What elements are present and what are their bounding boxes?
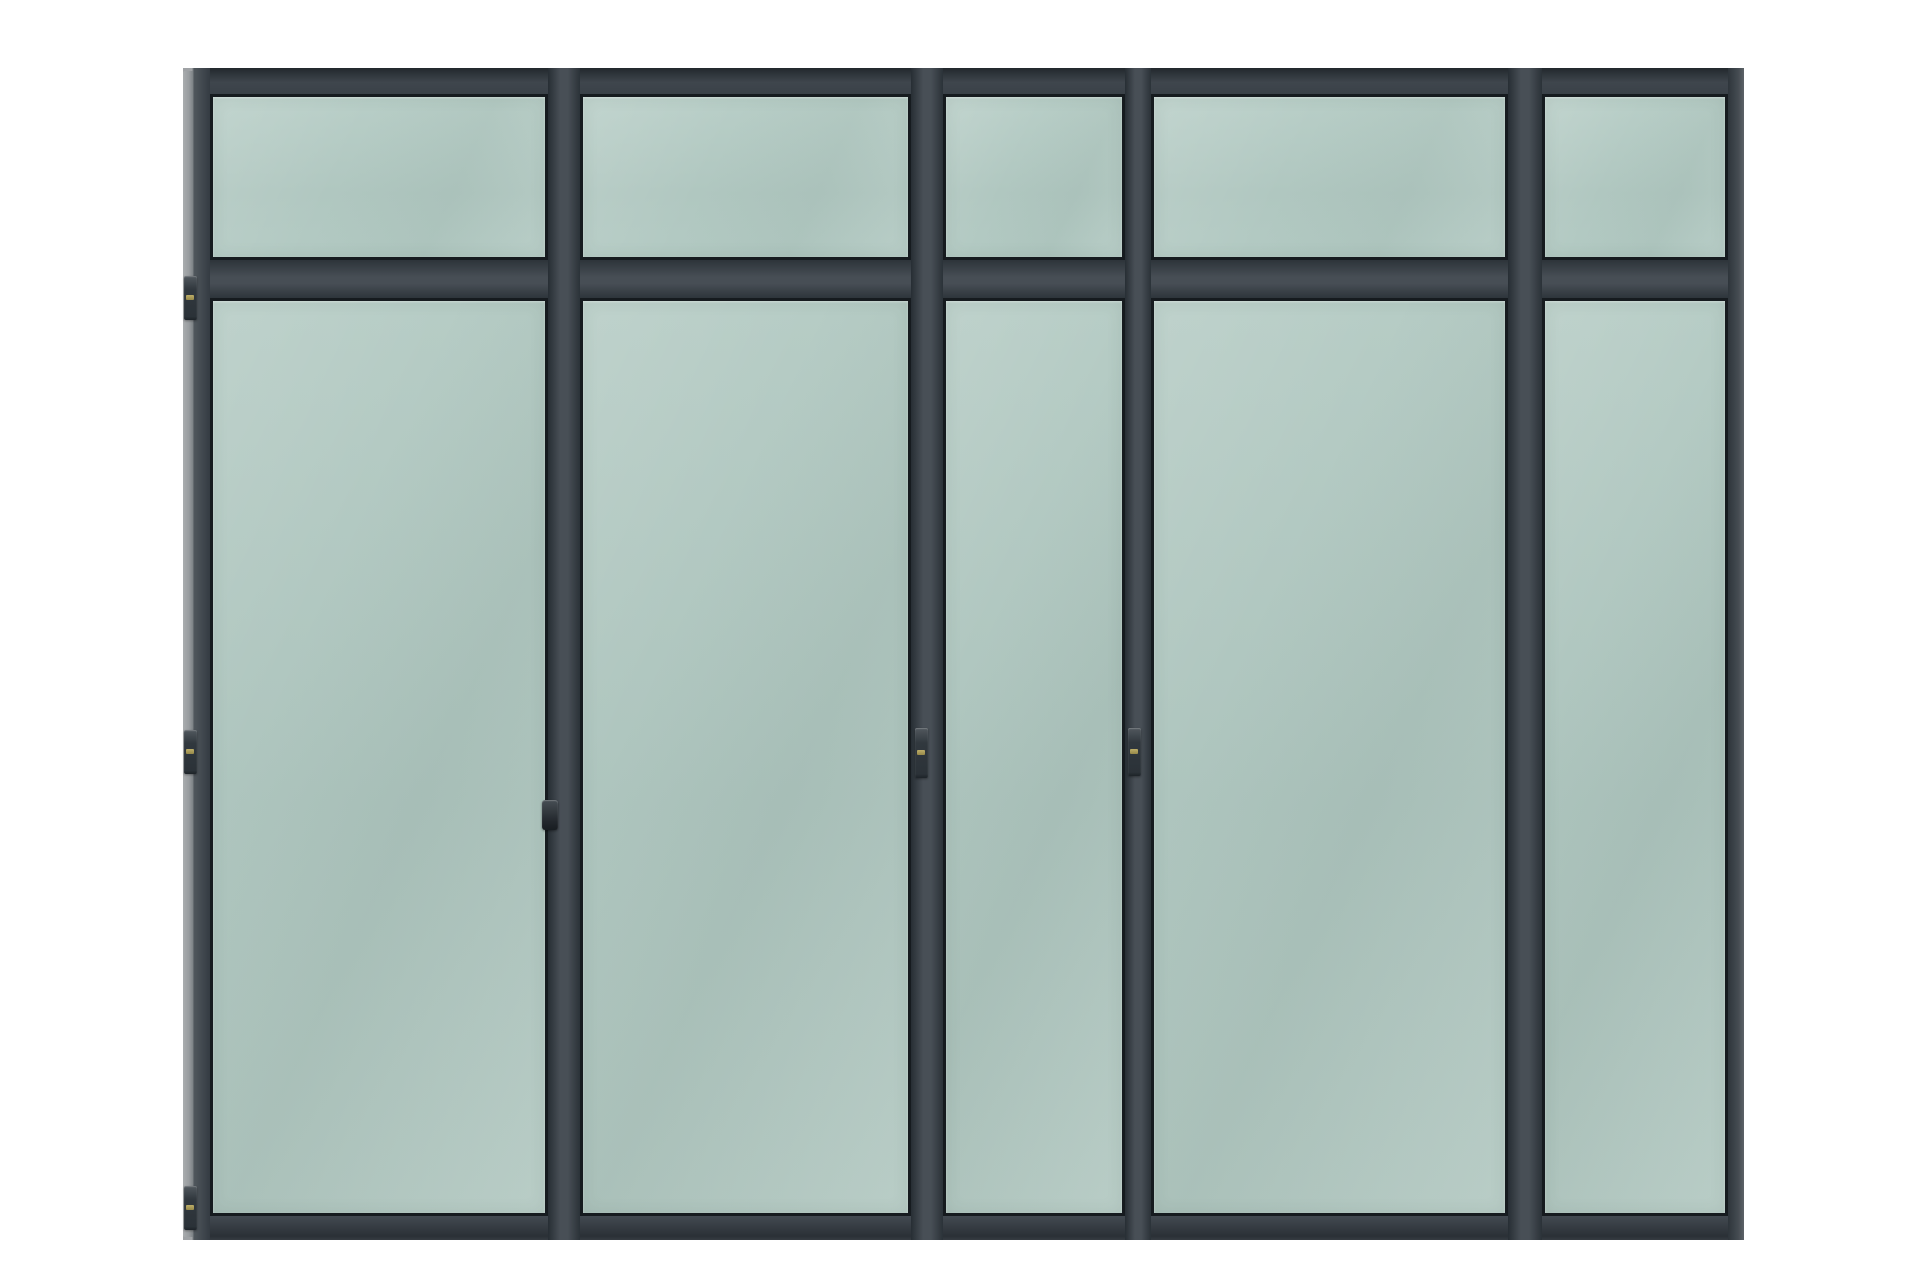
- transom-pane-1: [210, 94, 548, 260]
- transom-pane-3: [943, 94, 1125, 260]
- hinge-left-jamb-middle: [184, 730, 197, 774]
- hinge-pin: [1130, 749, 1138, 754]
- frame-mullion-3: [1125, 68, 1151, 1240]
- hinge-pin: [917, 750, 925, 755]
- hinge-pin: [186, 1205, 194, 1210]
- frame-mullion-2: [911, 68, 943, 1240]
- transom-pane-4: [1151, 94, 1508, 260]
- hinge-pin: [186, 749, 194, 754]
- main-pane-4: [1151, 298, 1508, 1216]
- glass-partition-wall: [183, 68, 1744, 1240]
- hinge-left-jamb-bottom: [184, 1186, 197, 1230]
- hinge-mullion-3-middle: [1128, 728, 1141, 776]
- product-image: [0, 0, 1920, 1280]
- frame-outer-bevel: [183, 71, 193, 1237]
- main-pane-2: [580, 298, 911, 1216]
- main-pane-3: [943, 298, 1125, 1216]
- hinge-mullion-2-middle: [915, 728, 928, 778]
- transom-pane-5: [1542, 94, 1728, 260]
- frame-mullion-1: [548, 68, 580, 1240]
- frame-mullion-4: [1508, 68, 1542, 1240]
- hinge-pin: [186, 295, 194, 300]
- door-handle-pane-1: [542, 800, 558, 830]
- main-pane-1: [210, 298, 548, 1216]
- hinge-left-jamb-top: [184, 276, 197, 320]
- main-pane-5: [1542, 298, 1728, 1216]
- transom-pane-2: [580, 94, 911, 260]
- frame-right-jamb: [1728, 68, 1744, 1240]
